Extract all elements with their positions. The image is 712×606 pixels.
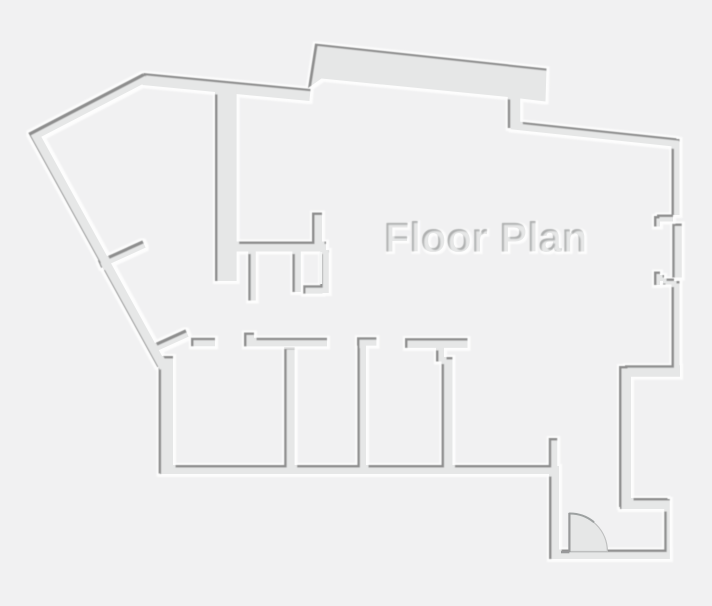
svg-text:Floor Plan: Floor Plan [384,214,587,261]
